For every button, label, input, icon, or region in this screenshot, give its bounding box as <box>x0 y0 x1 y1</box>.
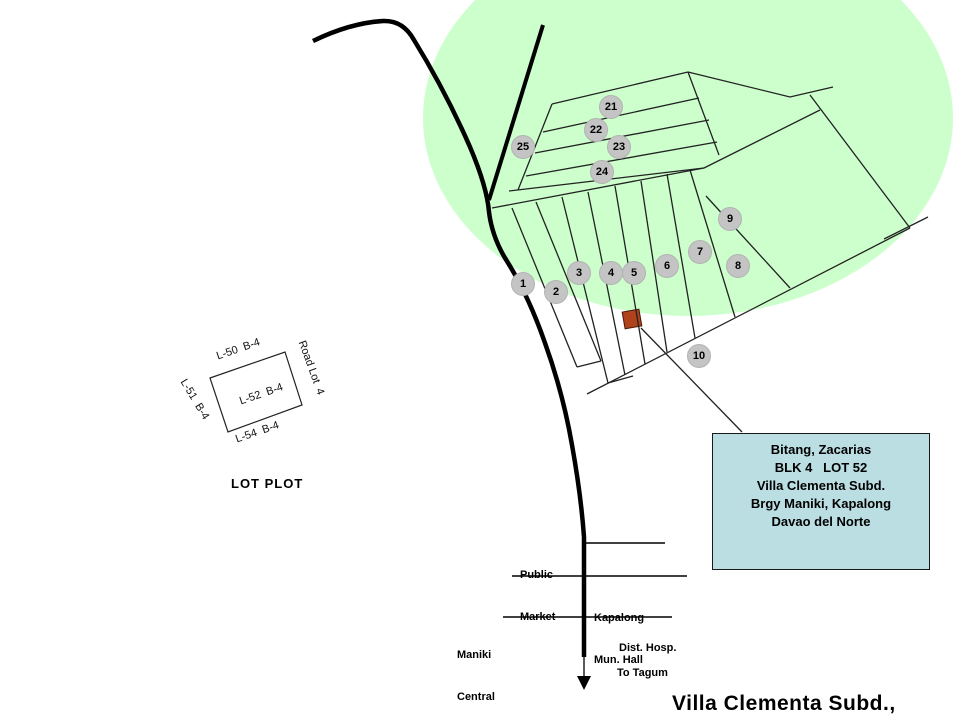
lot-marker-23: 23 <box>607 135 631 159</box>
lot-marker-4: 4 <box>599 261 623 285</box>
lot-marker-6: 6 <box>655 254 679 278</box>
map-title-line1: Villa Clementa Subd., <box>672 691 931 716</box>
lot-marker-8: 8 <box>726 254 750 278</box>
info-block-lot: BLK 4 LOT 52 <box>713 459 929 477</box>
elementary-school-label: Maniki Central Elem sch <box>457 620 505 720</box>
lot-plot-caption: LOT PLOT <box>231 477 303 491</box>
info-subdivision: Villa Clementa Subd. <box>713 477 929 495</box>
lot-marker-5: 5 <box>622 261 646 285</box>
lot-marker-25: 25 <box>511 135 535 159</box>
district-hospital-label: Dist. Hosp. <box>619 641 676 655</box>
pointer-line <box>641 328 742 432</box>
lot-info-box: Bitang, Zacarias BLK 4 LOT 52 Villa Clem… <box>712 433 930 570</box>
info-province: Davao del Norte <box>713 513 929 531</box>
map-canvas <box>0 0 960 720</box>
lot-marker-3: 3 <box>567 261 591 285</box>
south-arrowhead <box>577 676 591 690</box>
lot-marker-9: 9 <box>718 207 742 231</box>
lot-marker-10: 10 <box>687 344 711 368</box>
lot-marker-21: 21 <box>599 95 623 119</box>
vicinity-map-slide: 123456789102122232425 Bitang, Zacarias B… <box>0 0 960 720</box>
lot-marker-1: 1 <box>511 272 535 296</box>
lot-marker-7: 7 <box>688 240 712 264</box>
info-barangay: Brgy Maniki, Kapalong <box>713 495 929 513</box>
public-market-label: Public Market <box>520 540 555 652</box>
info-owner: Bitang, Zacarias <box>713 441 929 459</box>
lot-marker-24: 24 <box>590 160 614 184</box>
lot-marker-22: 22 <box>584 118 608 142</box>
to-tagum-label: To Tagum <box>617 666 668 680</box>
lot-marker-2: 2 <box>544 280 568 304</box>
map-title: Villa Clementa Subd., Maniki, Kapalong, … <box>672 641 931 720</box>
